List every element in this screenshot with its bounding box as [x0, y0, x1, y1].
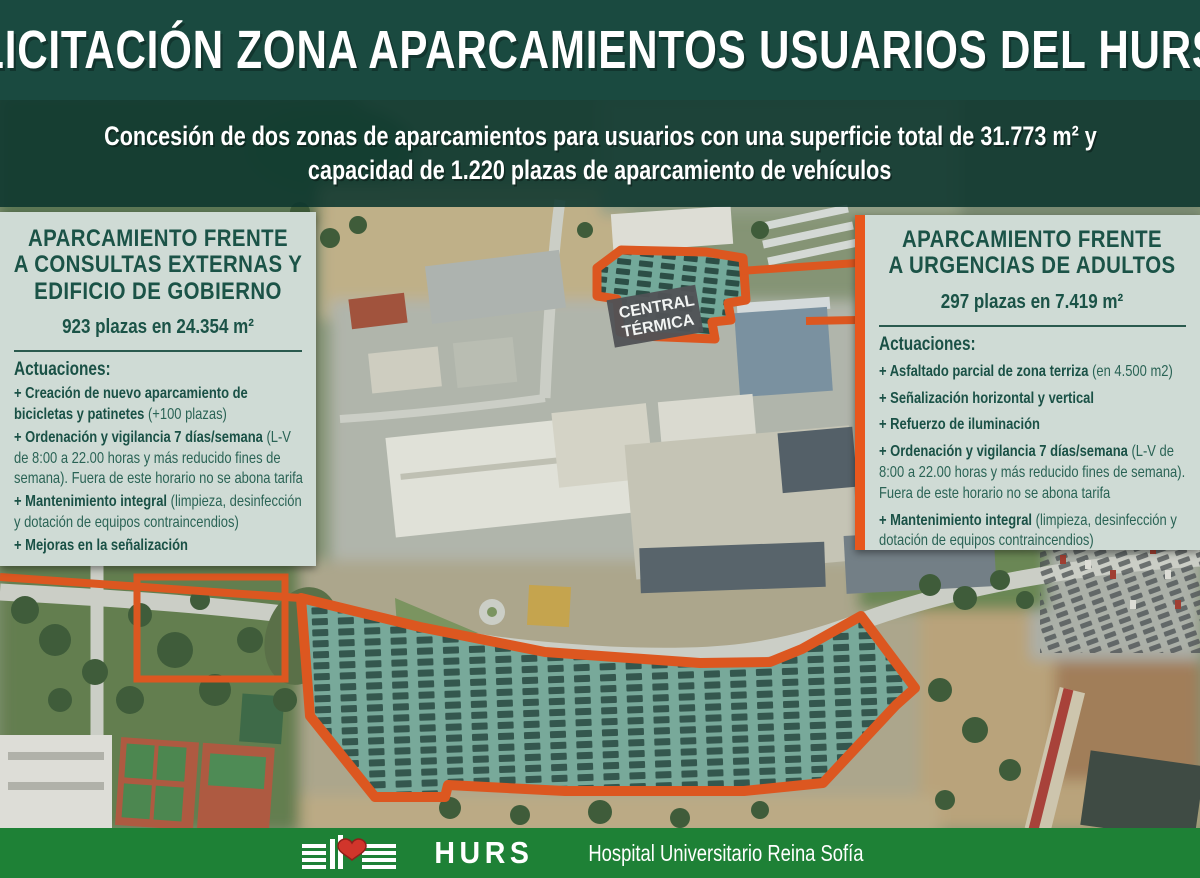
page-title: LICITACIÓN ZONA APARCAMIENTOS USUARIOS D… [0, 19, 1200, 81]
panel-consultas-externas: APARCAMIENTO FRENTE A CONSULTAS EXTERNAS… [0, 212, 316, 566]
action-bold: + Refuerzo de iluminación [879, 416, 1040, 433]
footer-hospital-name: Hospital Universitario Reina Sofía [588, 840, 863, 867]
panel-left-capacity: 923 plazas en 24.354 m² [0, 316, 316, 339]
panel-left-title-line3: EDIFICIO DE GOBIERNO [0, 279, 316, 305]
actions-label: Actuaciones: [14, 359, 304, 381]
panel-left-title-line2: A CONSULTAS EXTERNAS Y [0, 252, 316, 278]
panel-left-divider [14, 350, 302, 352]
action-bold: + Mantenimiento integral [879, 512, 1032, 529]
panel-right-actions: Actuaciones: + Asfaltado parcial de zona… [879, 334, 1185, 552]
action-rest: (+100 plazas) [144, 406, 226, 423]
panel-right-capacity: 297 plazas en 7.419 m² [874, 291, 1190, 314]
footer-acronym: HURS [434, 835, 533, 871]
action-bold: + Mejoras en la señalización [14, 537, 188, 554]
panel-left-head: APARCAMIENTO FRENTE A CONSULTAS EXTERNAS… [0, 226, 316, 339]
action-item: + Ordenación y vigilancia 7 días/semana … [879, 442, 1185, 504]
subtitle-line2: capacidad de 1.220 plazas de aparcamient… [308, 155, 891, 186]
action-bold: + Asfaltado parcial de zona terriza [879, 363, 1088, 380]
panel-left-actions: Actuaciones: + Creación de nuevo aparcam… [14, 359, 304, 556]
header-band: LICITACIÓN ZONA APARCAMIENTOS USUARIOS D… [0, 0, 1200, 100]
action-bold: + Señalización horizontal y vertical [879, 390, 1094, 407]
panel-left-title-line1: APARCAMIENTO FRENTE [0, 226, 316, 252]
footer-band: HURS Hospital Universitario Reina Sofía [0, 828, 1200, 878]
action-item: + Refuerzo de iluminación [879, 415, 1185, 436]
panel-right-title-line2: A URGENCIAS DE ADULTOS [874, 253, 1190, 279]
subtitle-line1: Concesión de dos zonas de aparcamientos … [104, 121, 1097, 152]
action-item: + Ordenación y vigilancia 7 días/semana … [14, 428, 304, 490]
subtitle-band: Concesión de dos zonas de aparcamientos … [0, 100, 1200, 207]
action-item: + Creación de nuevo aparcamiento de bici… [14, 384, 304, 426]
action-bold: + Mantenimiento integral [14, 493, 167, 510]
panel-right-head: APARCAMIENTO FRENTE A URGENCIAS DE ADULT… [874, 227, 1190, 314]
poster: CENTRAL TÉRMICA LICITACIÓN ZONA APARCAMI… [0, 0, 1200, 878]
hurs-logo-icon [302, 833, 414, 873]
panel-right-divider [879, 325, 1186, 327]
actions-label: Actuaciones: [879, 334, 1185, 356]
panel-urgencias-adultos: APARCAMIENTO FRENTE A URGENCIAS DE ADULT… [855, 215, 1200, 550]
action-item: + Mantenimiento integral (limpieza, desi… [879, 511, 1185, 553]
action-bold: + Ordenación y vigilancia 7 días/semana [14, 429, 263, 446]
action-item: + Mejoras en la señalización [14, 536, 304, 557]
action-rest: (en 4.500 m2) [1088, 363, 1172, 380]
panel-right-title-line1: APARCAMIENTO FRENTE [874, 227, 1190, 253]
action-item: + Mantenimiento integral (limpieza, desi… [14, 492, 304, 534]
action-bold: + Ordenación y vigilancia 7 días/semana [879, 443, 1128, 460]
action-item: + Asfaltado parcial de zona terriza (en … [879, 362, 1185, 383]
action-item: + Señalización horizontal y vertical [879, 389, 1185, 410]
